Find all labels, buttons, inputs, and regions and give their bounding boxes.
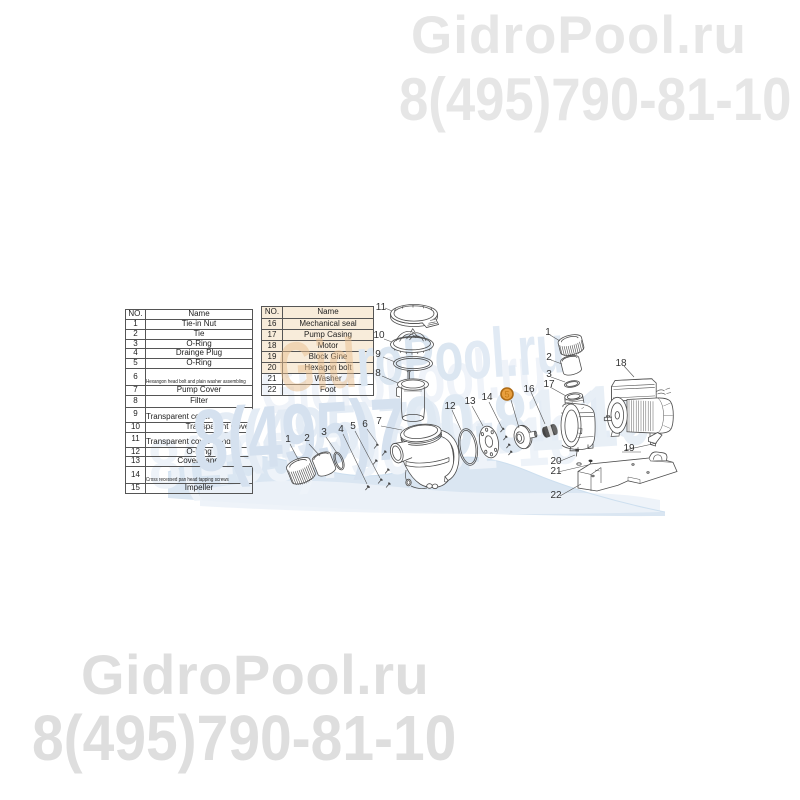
svg-text:11: 11	[376, 302, 387, 313]
svg-text:3: 3	[546, 369, 552, 380]
svg-text:1: 1	[285, 434, 291, 445]
svg-text:2: 2	[546, 352, 552, 363]
svg-text:14: 14	[481, 392, 493, 403]
svg-text:5: 5	[504, 390, 509, 400]
svg-text:22: 22	[550, 490, 562, 501]
svg-text:2: 2	[304, 433, 310, 444]
svg-text:21: 21	[550, 466, 562, 477]
svg-text:16: 16	[523, 384, 535, 395]
svg-text:18: 18	[615, 358, 627, 369]
svg-text:8: 8	[375, 368, 381, 379]
svg-text:1: 1	[545, 327, 551, 338]
svg-text:10: 10	[373, 330, 385, 341]
svg-text:3: 3	[321, 427, 327, 438]
svg-text:7: 7	[376, 416, 382, 427]
svg-text:6: 6	[362, 419, 368, 430]
svg-text:9: 9	[375, 349, 381, 360]
svg-text:13: 13	[464, 396, 476, 407]
svg-text:19: 19	[623, 443, 635, 454]
svg-text:4: 4	[338, 424, 344, 435]
svg-text:12: 12	[444, 401, 456, 412]
svg-text:5: 5	[350, 421, 356, 432]
svg-text:17: 17	[543, 379, 555, 390]
